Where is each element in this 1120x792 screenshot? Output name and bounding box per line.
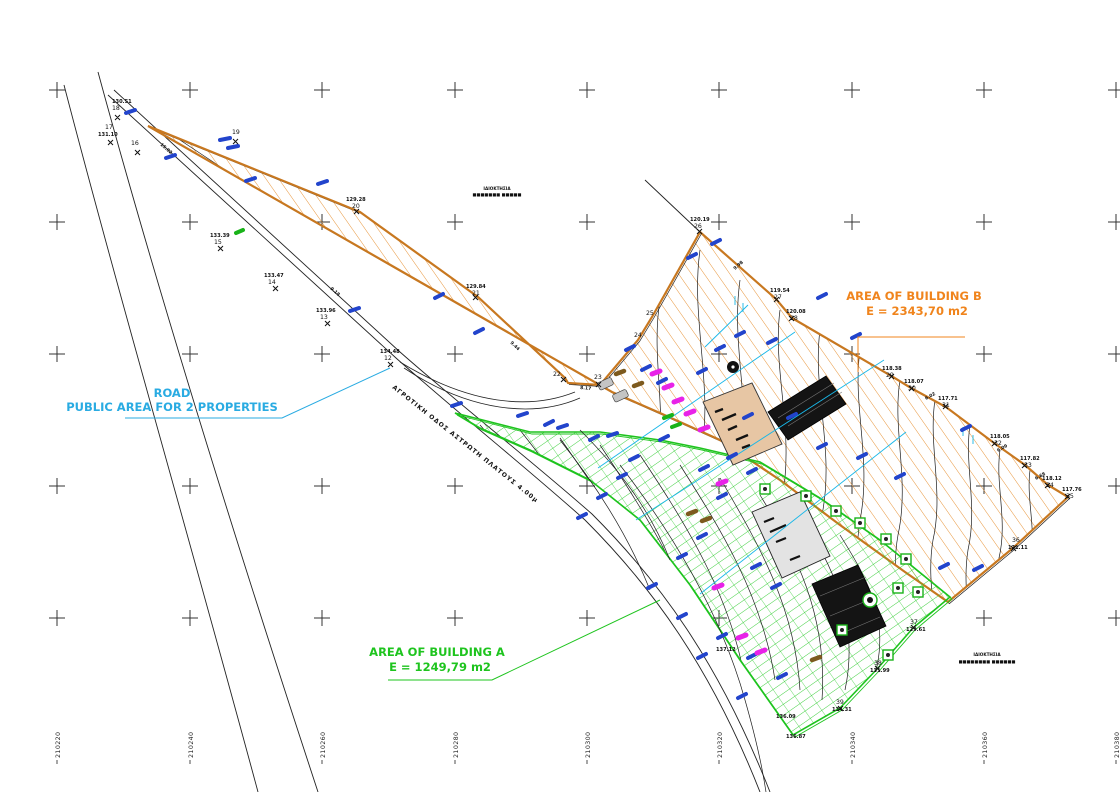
pt16-num: 16: [131, 140, 139, 147]
pt12-num: 12: [384, 355, 392, 362]
well-symbol: [727, 361, 739, 373]
coord-210300: 210300: [585, 732, 592, 758]
label-building-a-line1: AREA OF BUILDING A: [369, 645, 505, 659]
label-building-b-line1: AREA OF BUILDING B: [846, 289, 982, 303]
pt24-num: 24: [634, 332, 642, 339]
label-building-a-line2: E = 1249,79 m2: [389, 660, 491, 674]
pt27-num: 27: [774, 294, 782, 301]
pt38-num: 38: [874, 660, 882, 667]
pt35-num: 35: [1066, 493, 1074, 500]
site-plan-canvas: AREA OF BUILDING B E = 2343,70 m2 AREA O…: [0, 0, 1120, 792]
pt18-num: 18: [112, 105, 120, 112]
pt39-num: 39: [836, 699, 844, 706]
coord-210260: 210260: [320, 732, 327, 758]
label-building-b-line2: E = 2343,70 m2: [866, 304, 968, 318]
pt-elev-13609: 136.09: [776, 714, 796, 720]
pt-elev-13712: 137.12: [716, 647, 736, 653]
coord-210320: 210320: [717, 732, 724, 758]
pt17-elev: 131.10: [98, 132, 118, 138]
pt36-elev: 121.11: [1008, 545, 1028, 551]
pt13-num: 13: [320, 314, 328, 321]
adjacent-note-bottom-line2: ■■■■■■■■ ■■■■■■: [959, 659, 1016, 664]
pt39-elev: 134.31: [832, 707, 852, 713]
terrain-line-west-1: [64, 85, 258, 792]
pt33-num: 33: [1024, 462, 1032, 469]
coord-210240: 210240: [188, 732, 195, 758]
pt31-num: 31: [942, 402, 950, 409]
pt20-num: 20: [352, 203, 360, 210]
pt17-num: 17: [105, 124, 113, 131]
label-road-line1: ROAD: [154, 386, 191, 400]
coord-210380: 210380: [1114, 732, 1120, 758]
easting-coordinates: 210220 210240 210260 210280 210300 21032…: [55, 732, 1120, 764]
coord-210340: 210340: [850, 732, 857, 758]
pt-elev-13687: 136.87: [786, 734, 806, 740]
survey-drawing: AREA OF BUILDING B E = 2343,70 m2 AREA O…: [0, 0, 1120, 792]
terrain-line-west-2: [98, 72, 318, 792]
road-lines: [108, 90, 770, 792]
adjacent-note-bottom-line1: ΙΔΙΟΚΤΗΣΙΑ: [973, 652, 1001, 657]
label-road-line2: PUBLIC AREA FOR 2 PROPERTIES: [66, 400, 278, 414]
adjacent-note-top-line2: ■■■■■■■ ■■■■■: [473, 192, 522, 197]
pt19-num: 19: [232, 129, 240, 136]
pt37-elev: 129.61: [906, 627, 926, 633]
coord-210220: 210220: [55, 732, 62, 758]
dist-3: 8.17: [580, 385, 592, 392]
adjacent-note-top-line1: ΙΔΙΟΚΤΗΣΙΑ: [483, 186, 511, 191]
coord-210280: 210280: [453, 732, 460, 758]
pt15-num: 15: [214, 239, 222, 246]
boundary-line-ne: [645, 180, 700, 232]
parcel-building-b: [148, 126, 1070, 650]
pt29-num: 29: [886, 372, 894, 379]
pt22-num: 22: [553, 371, 561, 378]
pt36-num: 36: [1012, 537, 1020, 544]
dist-0: 15.02: [159, 142, 174, 156]
pt23-num: 23: [594, 374, 602, 381]
pt26-num: 26: [694, 223, 702, 230]
pt34-num: 34: [1046, 482, 1054, 489]
dist-2: 9.44: [509, 340, 521, 352]
pt14-num: 14: [268, 279, 276, 286]
pt30-num: 30: [908, 385, 916, 392]
pt37-num: 37: [910, 619, 918, 626]
pt21-num: 21: [472, 290, 480, 297]
pt38-elev: 131.99: [870, 668, 890, 674]
coord-210360: 210360: [982, 732, 989, 758]
pt25-num: 25: [646, 310, 654, 317]
pt28-num: 28: [790, 315, 798, 322]
